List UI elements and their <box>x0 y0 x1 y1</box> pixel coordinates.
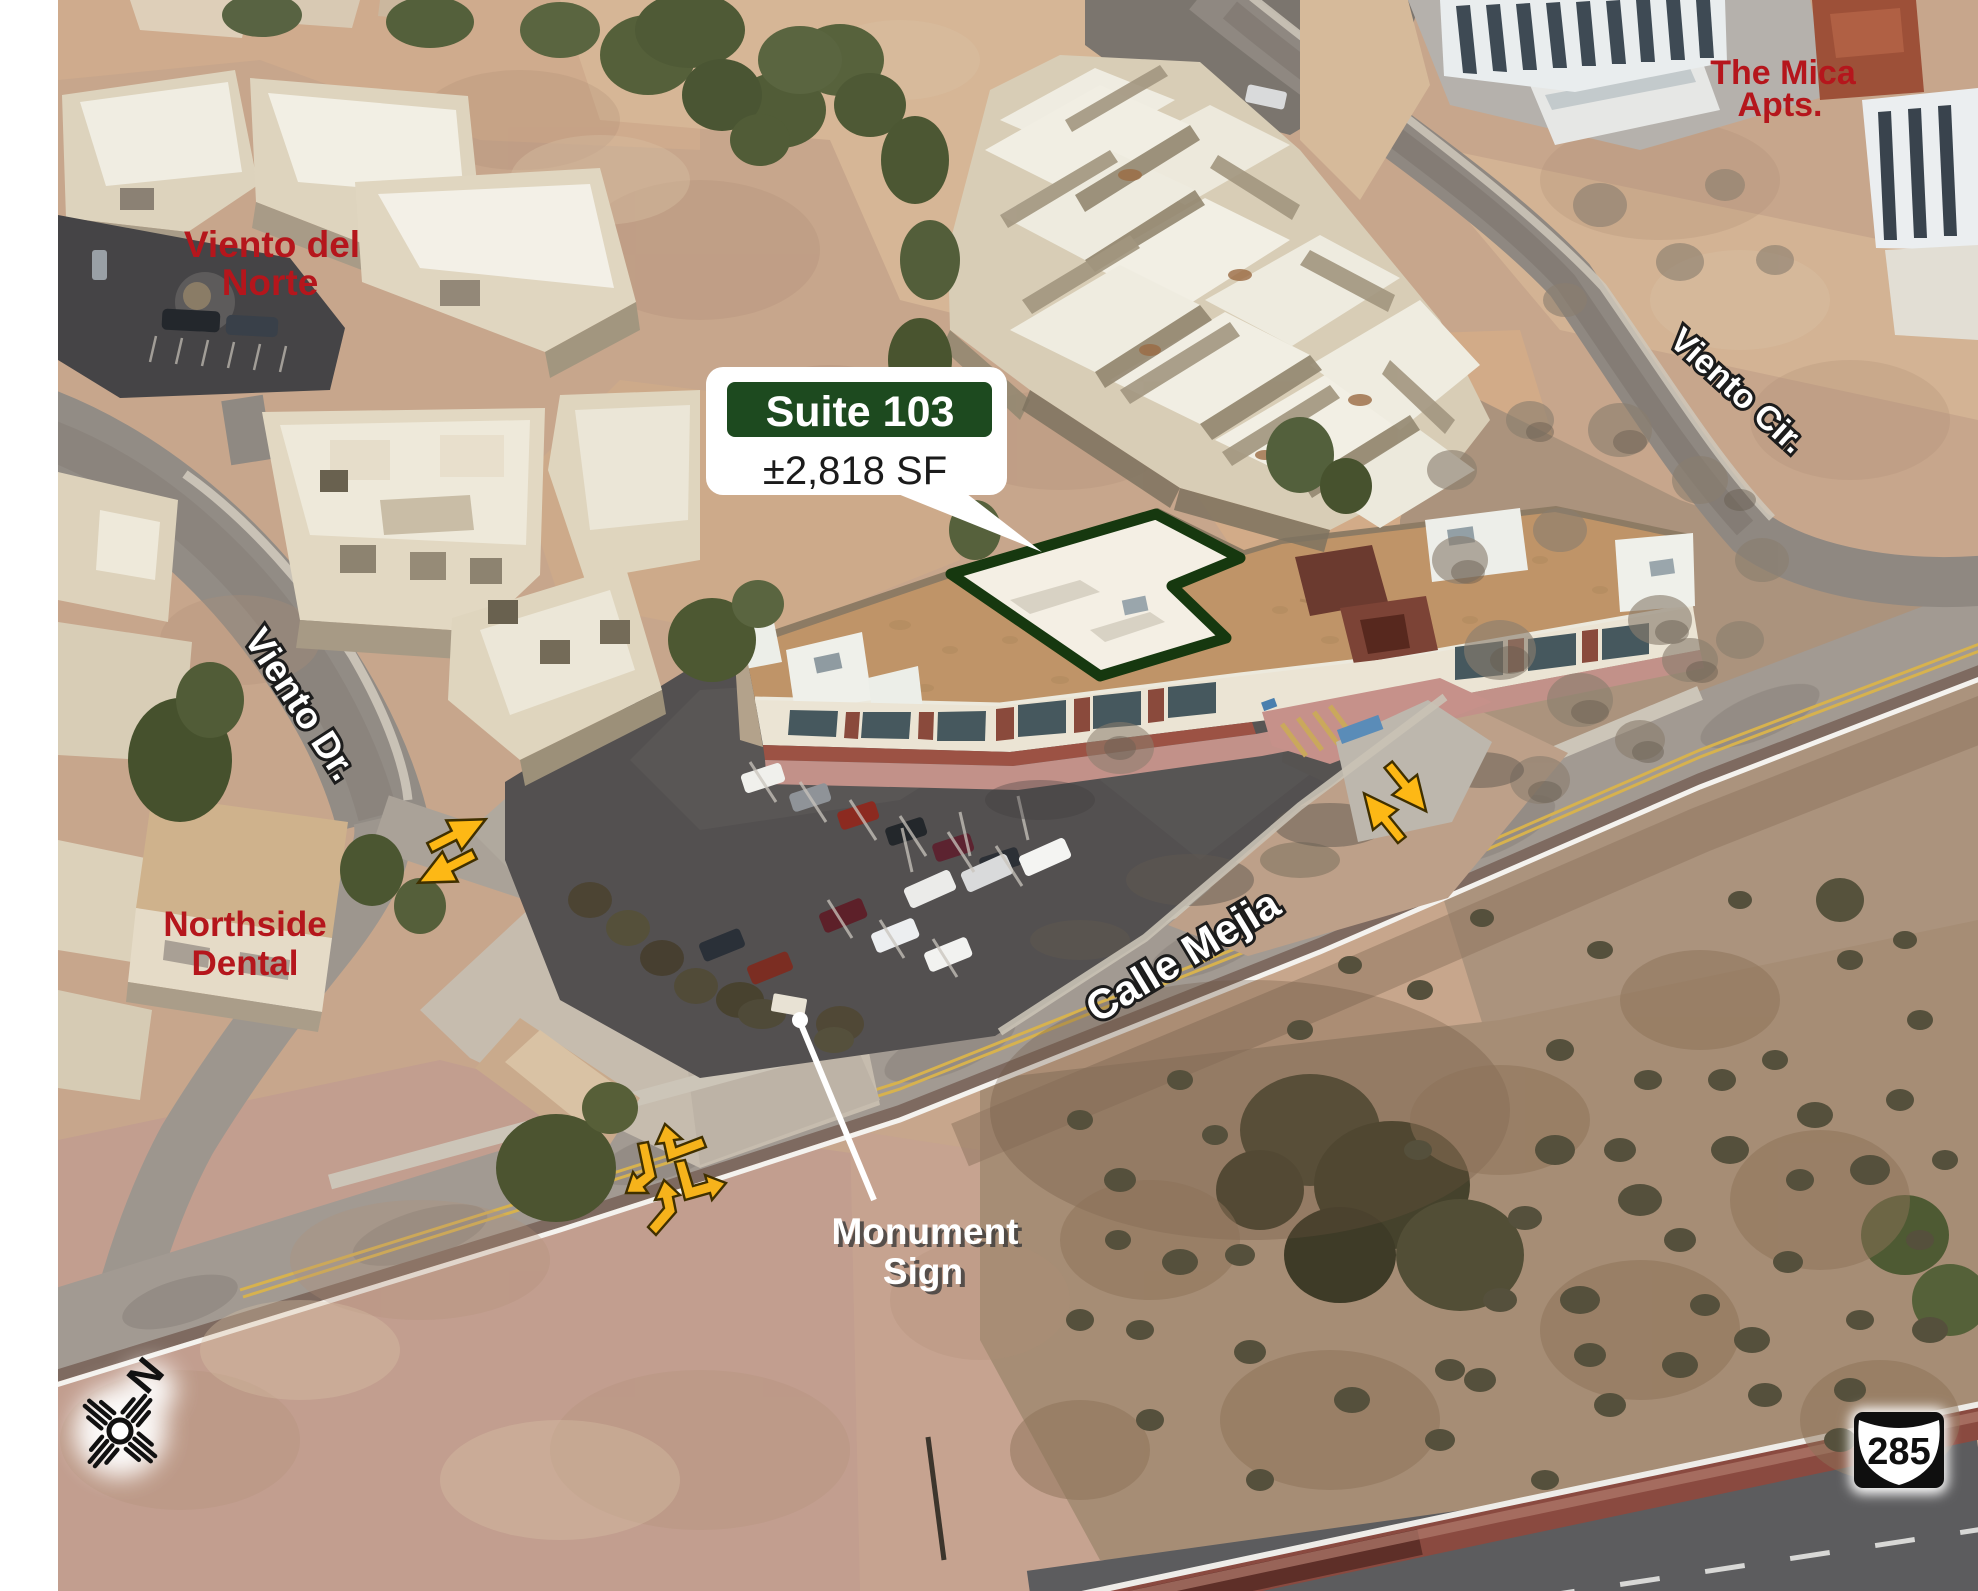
svg-text:Suite 103: Suite 103 <box>766 388 955 436</box>
svg-text:Northside: Northside <box>163 905 326 944</box>
svg-text:Apts.: Apts. <box>1738 86 1823 124</box>
svg-text:Norte: Norte <box>222 262 319 303</box>
svg-text:±2,818 SF: ±2,818 SF <box>763 449 947 493</box>
svg-text:285: 285 <box>1867 1431 1930 1473</box>
svg-text:Dental: Dental <box>192 944 299 983</box>
svg-text:Monument: Monument <box>831 1211 1018 1252</box>
svg-text:Viento del: Viento del <box>184 224 360 265</box>
svg-text:Sign: Sign <box>883 1251 963 1292</box>
